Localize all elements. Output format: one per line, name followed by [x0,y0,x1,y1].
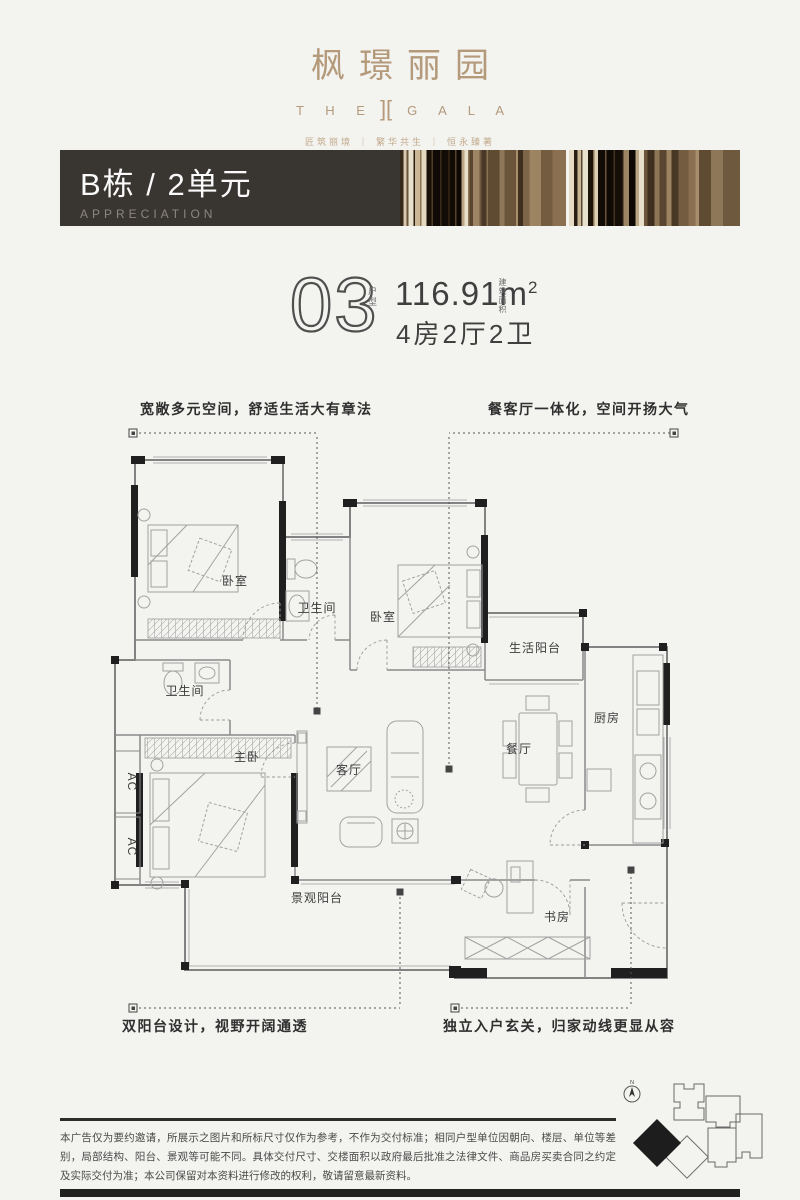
stripe-panel-left [400,150,566,226]
logo-bracket-mark: ][ [380,96,392,122]
logo-en-the: T H E [287,103,374,118]
room-label-kitchen: 厨房 [594,710,620,725]
logo-chinese-title: 枫璟丽园 [0,38,800,87]
decorative-stripe-band [400,150,740,226]
room-label-view-balcony: 景观阳台 [291,890,343,905]
unit-area: 116.91m2 [395,275,538,313]
building-outlines [666,1084,762,1178]
stripe-panel-right [569,150,740,226]
unit-room-count: 4房2厅2卫 [396,314,535,351]
room-label-bedroom-2: 卧室 [370,609,396,624]
room-label-bath-1: 卫生间 [297,601,336,615]
unit-area-note: 建筑面积 [497,278,508,314]
room-label-living: 客厅 [336,762,362,777]
wall-piers [111,456,670,978]
disclaimer-text: 本广告仅为要约邀请，所展示之图片和所标尺寸仅作为参考，不作为交付标准；相同户型单… [60,1129,616,1186]
floor-plan: 卧室 卫生间 卧室 生活阳台 厨房 餐厅 卫生间 主卧 客厅 景观阳台 书房 A… [95,425,710,1025]
annotation-top-right: 餐客厅一体化，空间开扬大气 [488,399,690,419]
room-label-study: 书房 [544,909,570,924]
logo-en-gala: G A L A [398,103,513,118]
poster-page: 枫璟丽园 T H E ][ G A L A 匠筑丽境 ｜ 繁华共生 ｜ 恒永臻著… [0,0,800,1200]
building-banner-subtitle: APPRECIATION [80,207,400,221]
north-compass [624,1086,640,1102]
room-label-dining: 餐厅 [506,741,532,756]
room-label-bedroom-1: 卧室 [222,573,248,588]
building-banner: B栋 / 2单元 APPRECIATION [60,150,400,226]
highlighted-unit [633,1119,681,1167]
room-label-master-bedroom: 主卧 [234,750,260,764]
room-label-ac-2: AC [125,838,139,857]
logo-english-title: T H E ][ G A L A [0,97,800,123]
unit-number-side-label: 户型 [366,286,379,308]
exterior-walls [115,460,667,978]
room-label-service-balcony: 生活阳台 [509,640,561,655]
disclaimer-block: 本广告仅为要约邀请，所展示之图片和所标尺寸仅作为参考，不作为交付标准；相同户型单… [60,1118,616,1186]
interior-walls [115,460,667,978]
room-label-ac-1: AC [125,773,139,792]
windows-and-rails [145,457,670,966]
room-label-bath-2: 卫生间 [165,684,204,698]
bottom-rule-bar [60,1189,740,1197]
building-unit-title: B栋 / 2单元 [80,159,400,204]
unit-area-superscript: 2 [528,278,538,297]
annotation-top-left: 宽敞多元空间，舒适生活大有章法 [140,399,373,419]
project-logo: 枫璟丽园 T H E ][ G A L A 匠筑丽境 ｜ 繁华共生 ｜ 恒永臻著 [0,38,800,148]
site-key-plan: N [618,1080,768,1198]
north-label: N [630,1080,634,1086]
logo-tagline: 匠筑丽境 ｜ 繁华共生 ｜ 恒永臻著 [0,135,800,148]
